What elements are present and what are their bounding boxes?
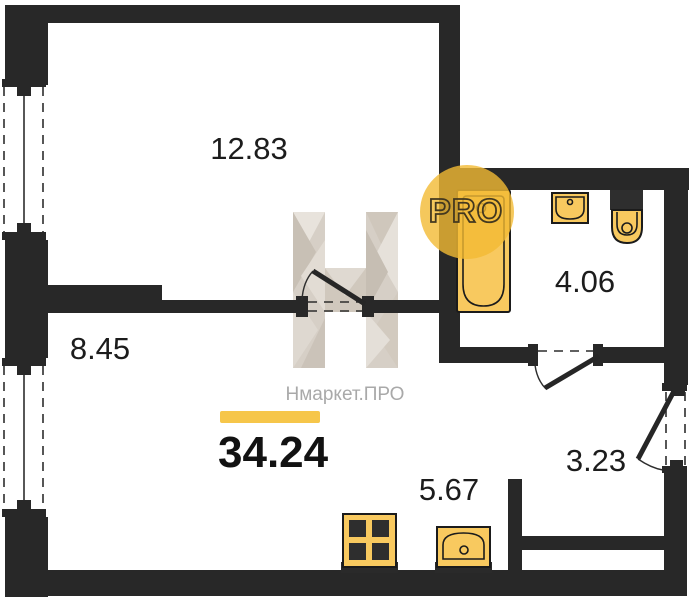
wall-bath-south-left [460,347,533,363]
total-area-accent-bar [220,411,320,423]
wall-left-middle [5,240,48,358]
wall-left-lower [5,517,48,597]
wall-top [5,5,460,23]
pro-badge-label: PRO [429,192,504,229]
wall-divider-right [362,300,445,313]
stove-icon [341,514,398,573]
room-area-kitchen: 5.67 [419,472,479,507]
total-area-value: 34.24 [218,428,329,477]
room-area-bathroom: 4.06 [555,264,615,299]
room-area-hallway: 3.23 [566,443,626,478]
brand-watermark-text: Нмаркет.ПРО [286,384,405,405]
bath-sink-icon [552,193,588,223]
room-area-bedroom: 8.45 [70,331,130,366]
wall-right-upper [664,168,688,385]
wall-hall-stub [521,536,665,550]
wall-divider-mid [162,300,308,313]
toilet-icon [610,190,643,243]
floor-plan: 12.83 8.45 4.06 5.67 3.23 34.24 Нмаркет.… [0,0,692,600]
floor-plan-canvas: 12.83 8.45 4.06 5.67 3.23 34.24 Нмаркет.… [0,0,692,600]
wall-bath-south-right [598,347,665,363]
pro-badge: PRO [420,165,514,259]
wall-kitchen-partition [508,479,522,596]
kitchen-sink-icon [435,527,492,573]
wall-divider-left [48,285,162,313]
wall-left-upper [5,5,48,85]
wall-right-lower [664,472,687,596]
wall-bottom [45,570,687,596]
room-area-living: 12.83 [210,131,288,166]
